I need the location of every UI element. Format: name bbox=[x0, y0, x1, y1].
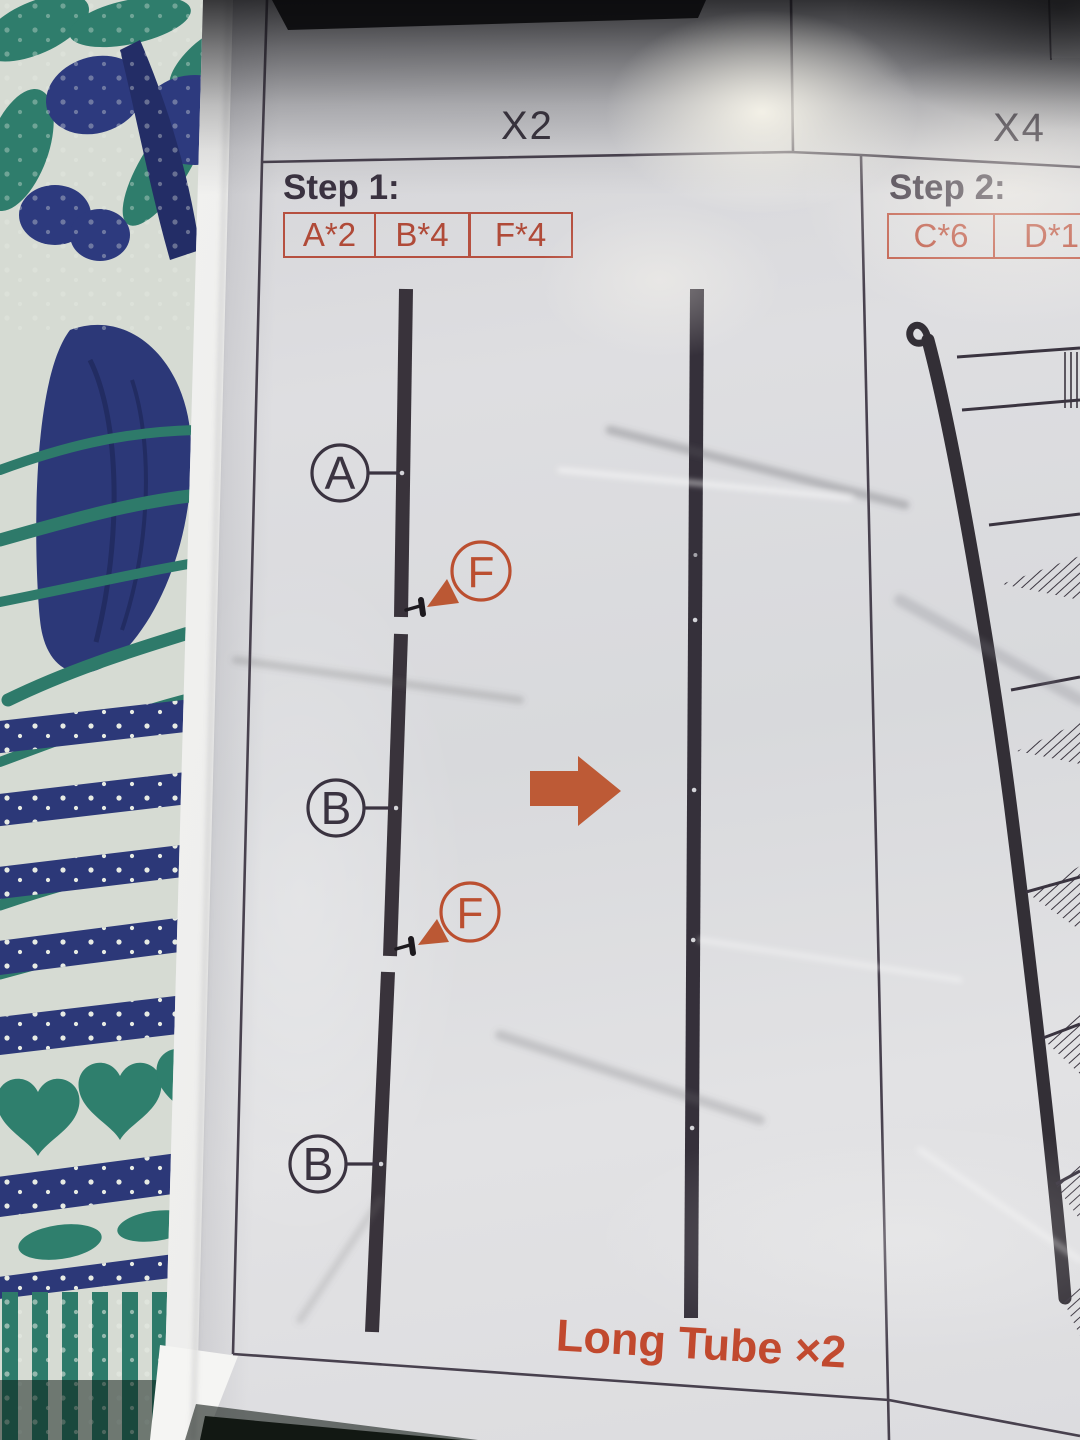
paper-glare bbox=[0, 0, 1080, 1440]
fabric-teal-hearts bbox=[0, 1049, 239, 1265]
callout-circle-B2 bbox=[290, 1136, 346, 1192]
step1-part-cell: F*4 bbox=[468, 212, 573, 258]
callout-letter-F1: F bbox=[468, 548, 495, 597]
top-right-cell-line bbox=[1049, 0, 1051, 60]
tube-segment-A bbox=[401, 289, 406, 617]
top-right-bright-cell bbox=[1051, 0, 1080, 58]
fabric-dot-texture bbox=[0, 0, 240, 330]
dark-object-top bbox=[0, 0, 1080, 1440]
shelf-back-grid bbox=[1064, 352, 1080, 408]
callout-letter-B2: B bbox=[303, 1138, 334, 1190]
step2-part-cell: C*6 bbox=[887, 213, 995, 259]
shelf-mesh-panels bbox=[1002, 556, 1080, 1336]
tube-callouts bbox=[290, 445, 399, 1192]
quantity-label-x2: X2 bbox=[501, 104, 554, 149]
top-shadow-overlay bbox=[0, 0, 1080, 1440]
step1-part-cell: B*4 bbox=[374, 212, 471, 258]
callout-circle-F1 bbox=[452, 542, 510, 600]
paper-folded-edge bbox=[0, 0, 1080, 1440]
fabric-leaf-veins bbox=[90, 360, 146, 642]
callout-letter-F2: F bbox=[457, 889, 484, 938]
paper-left-shading bbox=[172, 0, 317, 1440]
screw-pin-2 bbox=[396, 945, 410, 949]
fabric-bottom-shadow bbox=[0, 1380, 260, 1440]
shelf-pole bbox=[928, 340, 1065, 1298]
long-tube-caption: Long Tube ×2 bbox=[555, 1309, 848, 1378]
screw-pin-1 bbox=[406, 606, 420, 610]
step2-shelf-diagram bbox=[910, 325, 1080, 1336]
step-divider bbox=[861, 155, 889, 1440]
screw-callouts: F F bbox=[418, 542, 510, 945]
callout-circle-F2 bbox=[441, 883, 499, 941]
panel-left-border bbox=[233, 0, 267, 1354]
fabric-navy-leaf-large bbox=[36, 325, 191, 673]
fabric-base bbox=[0, 0, 260, 1440]
tube-callout-letters: A B B bbox=[303, 447, 356, 1190]
diagram-layer: A B B F F bbox=[0, 0, 1080, 1440]
tube-segment-B-bottom bbox=[372, 972, 388, 1332]
fabric-teal-leaves-top bbox=[0, 0, 260, 237]
callout-circle-A bbox=[312, 445, 368, 501]
tube-holes bbox=[379, 471, 698, 1167]
paper-bottom-fold bbox=[0, 0, 1080, 1440]
callout-letter-A: A bbox=[325, 447, 356, 499]
fabric-navy-shapes-top bbox=[19, 40, 250, 261]
tube-segments-left bbox=[372, 289, 406, 1332]
fabric-navy-dotted-bars bbox=[0, 696, 236, 1300]
joint-screws bbox=[396, 600, 423, 953]
screw-pointer-arrow-icon bbox=[418, 919, 449, 945]
step1-title: Step 1: bbox=[283, 168, 400, 208]
top-row-divider bbox=[791, 0, 793, 152]
screw-pointer-arrow-icon bbox=[427, 579, 459, 607]
step1-parts-table: A*2 B*4 F*4 bbox=[283, 212, 573, 258]
step2-parts-table: C*6 D*1 bbox=[887, 213, 1080, 259]
panel-bottom-border bbox=[233, 1354, 1080, 1436]
shelf-rungs bbox=[957, 348, 1080, 1184]
paper-sheet bbox=[0, 0, 1080, 1440]
step1-part-cell: A*2 bbox=[283, 212, 376, 258]
instruction-sheet-photo: A B B F F bbox=[0, 0, 1080, 1440]
callout-circle-B1 bbox=[308, 780, 364, 836]
step2-title: Step 2: bbox=[889, 168, 1006, 208]
screw-head-1 bbox=[421, 600, 423, 614]
paper-creases bbox=[193, 0, 1080, 1440]
fabric-background bbox=[0, 0, 260, 1440]
quantity-label-x4: X4 bbox=[993, 106, 1046, 151]
tube-segment-B-middle bbox=[390, 634, 401, 956]
bottom-left-shadow-dark bbox=[0, 0, 1080, 1440]
fabric-bottom-stripes bbox=[0, 1292, 210, 1440]
panel-borders bbox=[233, 0, 1080, 1440]
right-arrow-icon bbox=[530, 756, 621, 826]
fabric-teal-fronds bbox=[0, 430, 235, 975]
step2-part-cell: D*1 bbox=[993, 213, 1080, 259]
bottom-left-shadow bbox=[0, 0, 1080, 1440]
callout-letter-B1: B bbox=[321, 782, 352, 834]
screw-head-2 bbox=[411, 939, 413, 953]
header-underline bbox=[262, 152, 1080, 167]
shelf-pole-hook bbox=[910, 325, 928, 343]
assembled-long-tube bbox=[691, 289, 697, 1318]
